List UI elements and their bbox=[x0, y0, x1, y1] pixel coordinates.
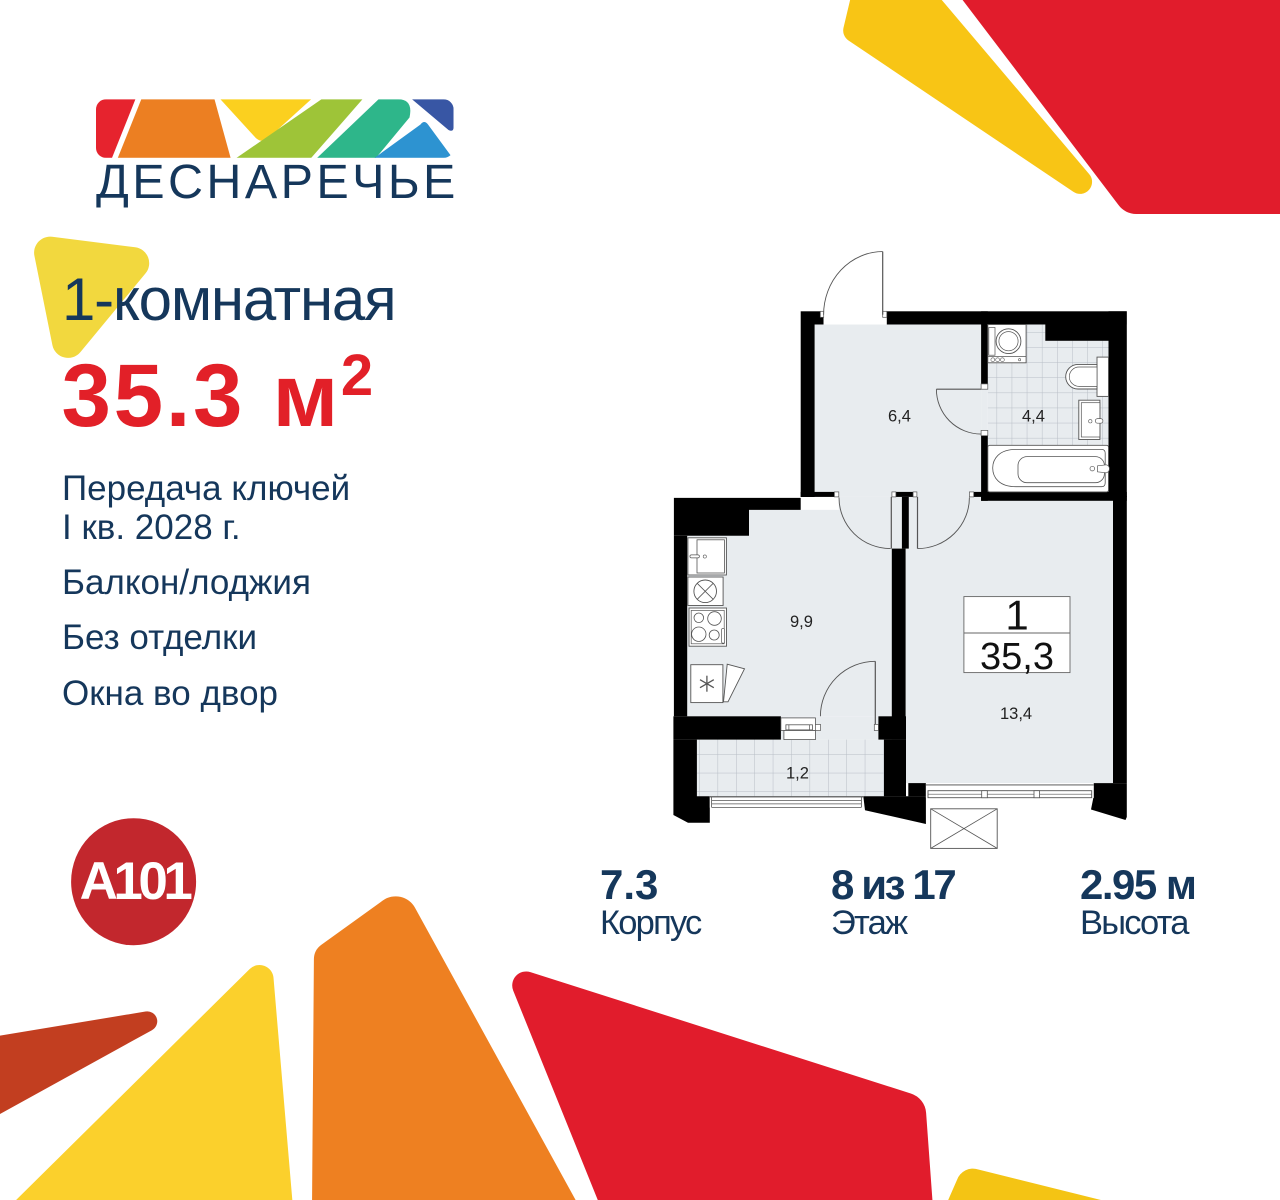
svg-text:6,4: 6,4 bbox=[888, 408, 911, 426]
svg-text:1,2: 1,2 bbox=[786, 765, 809, 783]
svg-text:4,4: 4,4 bbox=[1022, 408, 1045, 426]
svg-text:1: 1 bbox=[1005, 592, 1028, 639]
svg-text:35,3: 35,3 bbox=[980, 636, 1054, 678]
svg-text:9,9: 9,9 bbox=[790, 613, 813, 631]
svg-text:13,4: 13,4 bbox=[1000, 705, 1032, 723]
